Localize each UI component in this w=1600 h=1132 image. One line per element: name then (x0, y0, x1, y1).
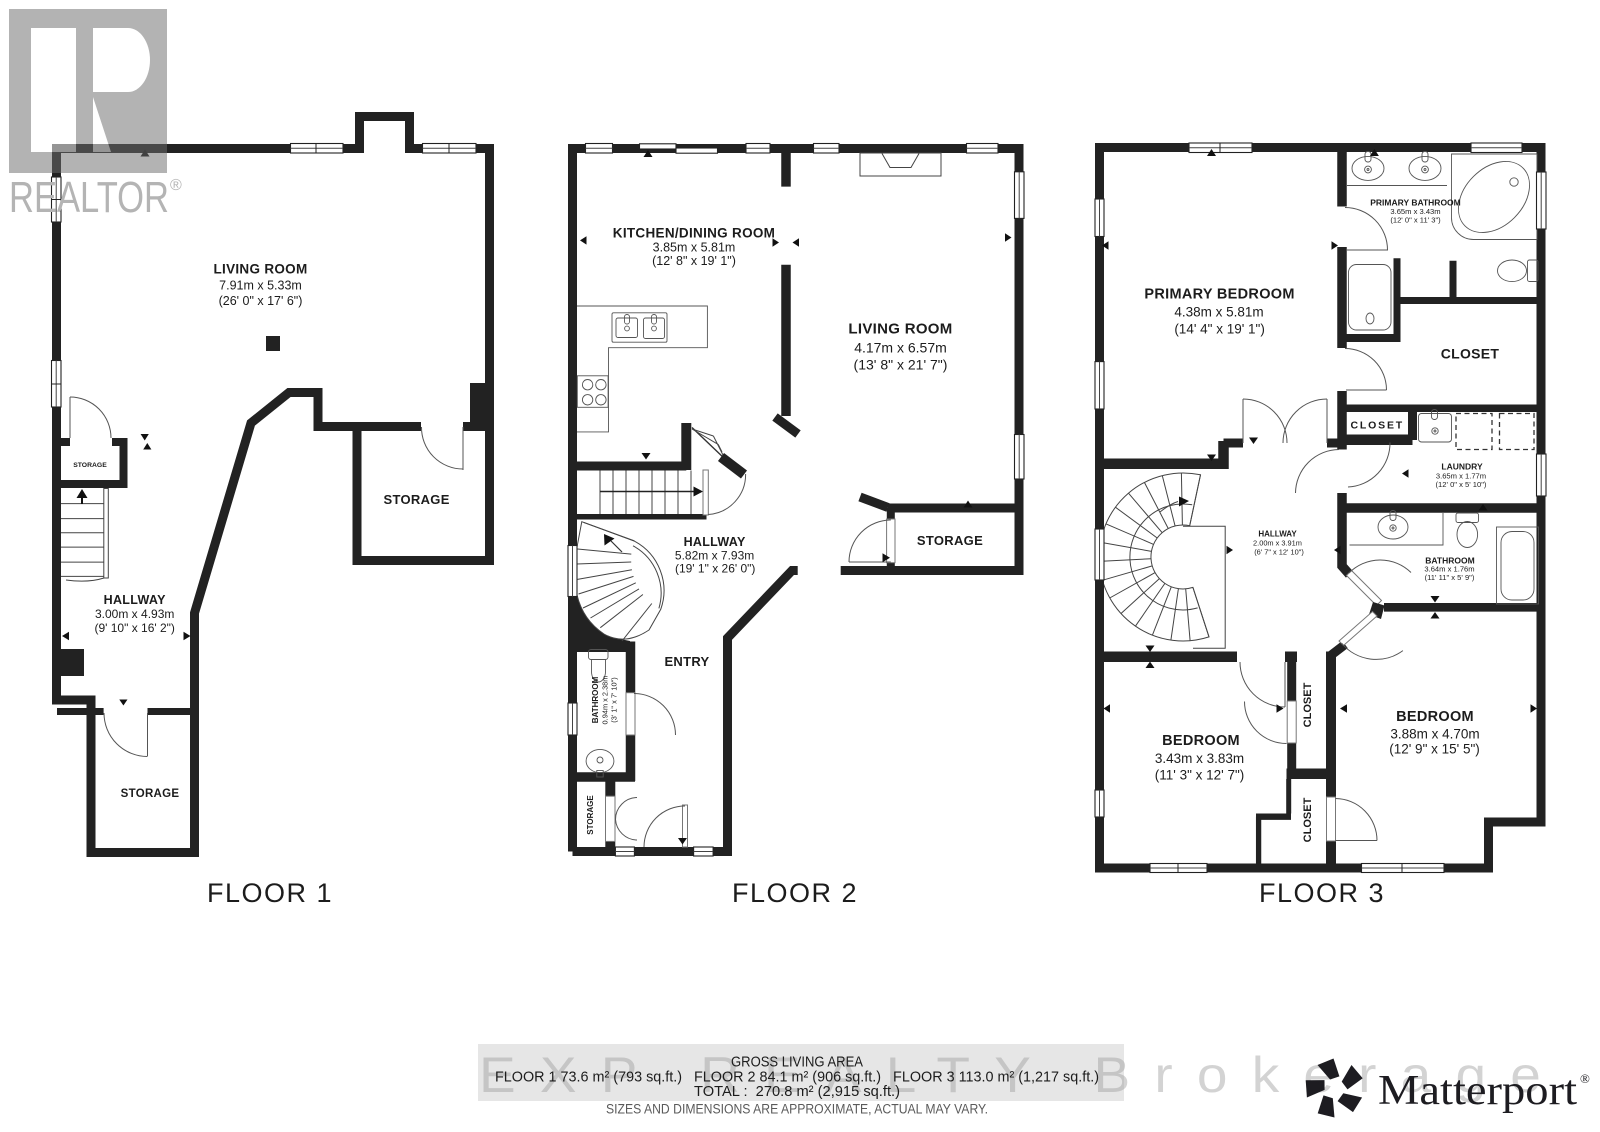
svg-text:ENTRY: ENTRY (664, 654, 709, 669)
svg-text:STORAGE: STORAGE (121, 788, 180, 800)
svg-text:7.91m x 5.33m: 7.91m x 5.33m (219, 279, 302, 293)
svg-text:LAUNDRY: LAUNDRY (1441, 462, 1483, 472)
svg-text:(19' 1" x 26' 0"): (19' 1" x 26' 0") (675, 562, 755, 576)
svg-text:(11' 3" x 12' 7"): (11' 3" x 12' 7") (1155, 768, 1245, 783)
svg-text:4.17m x 6.57m: 4.17m x 6.57m (854, 340, 947, 356)
svg-text:KITCHEN/DINING ROOM: KITCHEN/DINING ROOM (613, 226, 775, 241)
svg-text:3.00m x 4.93m: 3.00m x 4.93m (95, 607, 174, 621)
svg-text:HALLWAY: HALLWAY (104, 593, 166, 607)
svg-text:STORAGE: STORAGE (917, 533, 983, 548)
svg-text:®: ® (1580, 1071, 1590, 1086)
svg-text:(9' 10" x 16' 2"): (9' 10" x 16' 2") (94, 621, 174, 635)
svg-text:LIVING ROOM: LIVING ROOM (213, 262, 307, 277)
svg-text:BEDROOM: BEDROOM (1162, 733, 1240, 749)
svg-text:SIZES AND DIMENSIONS ARE APPRO: SIZES AND DIMENSIONS ARE APPROXIMATE, AC… (606, 1102, 988, 1117)
svg-text:4.38m x 5.81m: 4.38m x 5.81m (1174, 305, 1263, 320)
svg-text:TOTAL : 270.8 m² (2,915 sq.ft: TOTAL : 270.8 m² (2,915 sq.ft.) (694, 1083, 900, 1100)
svg-text:FLOOR 2: FLOOR 2 (732, 878, 858, 908)
svg-text:3.43m x 3.83m: 3.43m x 3.83m (1155, 751, 1244, 766)
svg-text:STORAGE: STORAGE (384, 492, 450, 507)
svg-text:CLOSET: CLOSET (1441, 346, 1500, 362)
svg-text:(26' 0" x 17' 6"): (26' 0" x 17' 6") (219, 294, 303, 308)
svg-text:3.85m x 5.81m: 3.85m x 5.81m (653, 241, 736, 255)
svg-text:HALLWAY: HALLWAY (684, 535, 746, 549)
svg-text:®: ® (170, 177, 182, 194)
svg-text:0.94m x 2.38m: 0.94m x 2.38m (601, 676, 610, 725)
svg-text:(13' 8" x 21' 7"): (13' 8" x 21' 7") (854, 357, 948, 373)
svg-text:(6' 7" x 12' 10"): (6' 7" x 12' 10") (1254, 548, 1304, 557)
svg-text:FLOOR 1: FLOOR 1 (207, 878, 333, 908)
svg-text:BATHROOM: BATHROOM (591, 676, 600, 723)
svg-text:(12' 0" x 11' 3"): (12' 0" x 11' 3") (1390, 215, 1441, 224)
svg-text:STORAGE: STORAGE (73, 462, 107, 469)
svg-text:(12' 8" x 19' 1"): (12' 8" x 19' 1") (652, 254, 736, 268)
svg-text:BEDROOM: BEDROOM (1396, 709, 1474, 725)
svg-text:PRIMARY BEDROOM: PRIMARY BEDROOM (1144, 287, 1294, 303)
svg-text:CLOSET: CLOSET (1302, 797, 1314, 842)
svg-text:3.88m x 4.70m: 3.88m x 4.70m (1390, 726, 1479, 741)
svg-text:(11' 11" x 5' 9"): (11' 11" x 5' 9") (1425, 573, 1475, 582)
svg-text:STORAGE: STORAGE (586, 795, 595, 835)
svg-text:(3' 1" x 7' 10"): (3' 1" x 7' 10") (610, 677, 619, 722)
svg-text:REALTOR: REALTOR (9, 173, 169, 222)
svg-text:2.00m x 3.91m: 2.00m x 3.91m (1253, 539, 1302, 548)
svg-text:LIVING ROOM: LIVING ROOM (848, 321, 952, 338)
svg-text:CLOSET: CLOSET (1302, 682, 1314, 727)
svg-text:HALLWAY: HALLWAY (1258, 530, 1297, 539)
svg-text:FLOOR 3: FLOOR 3 (1259, 878, 1385, 908)
svg-text:Matterport: Matterport (1378, 1068, 1577, 1114)
svg-text:5.82m x 7.93m: 5.82m x 7.93m (675, 549, 754, 563)
svg-text:(14' 4" x 19' 1"): (14' 4" x 19' 1") (1174, 322, 1265, 337)
svg-text:(12' 9" x 15' 5"): (12' 9" x 15' 5") (1389, 741, 1480, 756)
svg-text:(12' 0" x 5' 10"): (12' 0" x 5' 10") (1436, 480, 1487, 489)
